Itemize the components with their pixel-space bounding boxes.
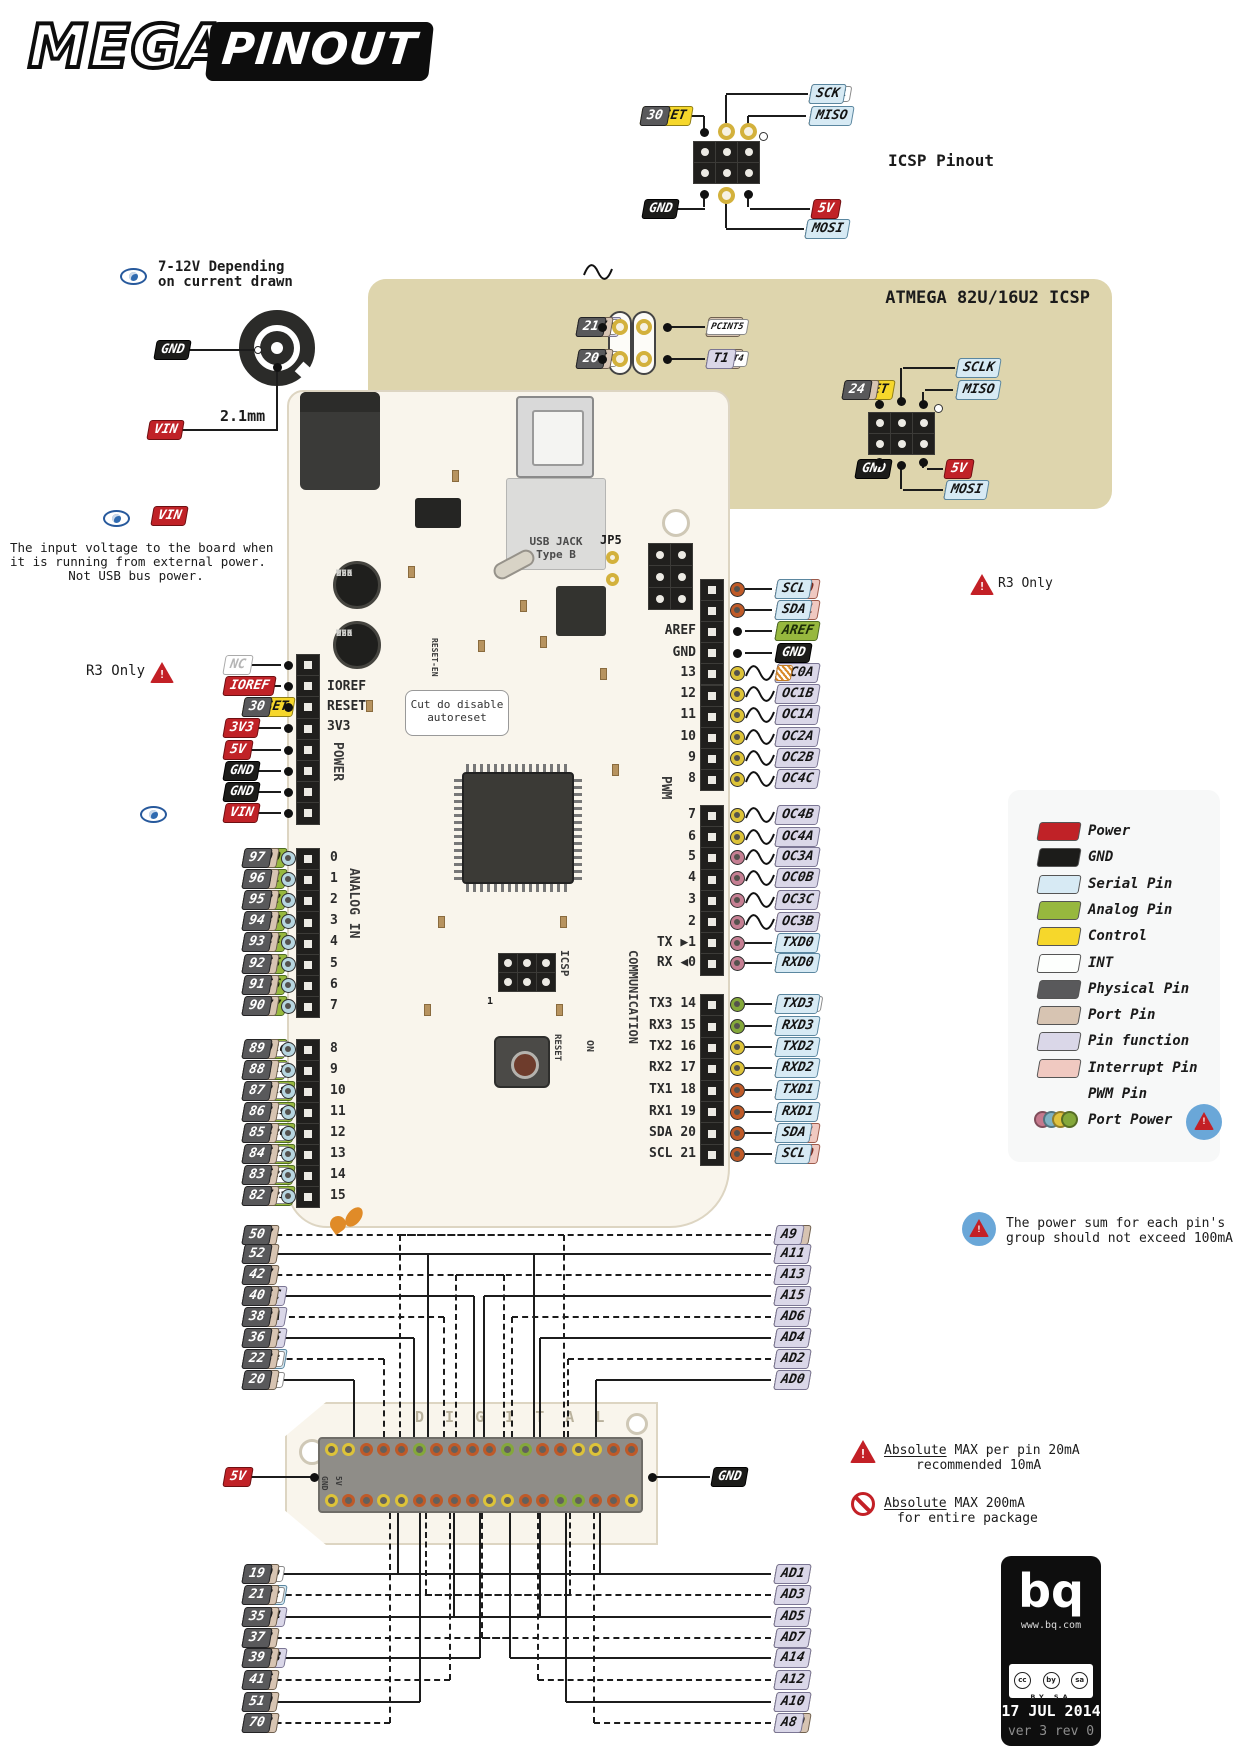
pin-dot [730, 808, 745, 823]
pin-dot [284, 661, 293, 670]
digital-pin-dot [554, 1443, 567, 1456]
pin-tag-se: RXD3 [774, 1016, 821, 1036]
connector-line [595, 1380, 597, 1437]
atmega2560-chip [462, 772, 574, 884]
pin-tag-se: TXD0 [774, 933, 821, 953]
pin-dot [281, 1189, 296, 1204]
pin-dot [284, 788, 293, 797]
pin-dot [730, 708, 745, 723]
pin-tag-gd: GND [854, 459, 893, 479]
connector-line [538, 1679, 771, 1681]
digital-pin-dot [342, 1494, 355, 1507]
pin-dot [730, 997, 745, 1012]
annotation-text: on current drawn [158, 274, 293, 290]
pin-tag-ph: 88 [241, 1060, 272, 1080]
pin-dot [919, 458, 928, 467]
smd-component [452, 470, 459, 482]
board-printed-label: TX1 18 [624, 1082, 696, 1097]
pin-dot [730, 751, 745, 766]
pin-dot [663, 323, 672, 332]
connector-line [668, 326, 705, 328]
connector-line [745, 1153, 772, 1155]
digital-pin-dot [625, 1443, 638, 1456]
pin-dot [281, 935, 296, 950]
pin-tag-ph: 85 [241, 1123, 272, 1143]
pin-tag-pw: IOREF [222, 676, 277, 696]
digital-pin-dot [395, 1494, 408, 1507]
header-pin [296, 802, 320, 824]
icsp-pin [670, 565, 693, 588]
legend-label: Power [1088, 823, 1130, 839]
board-printed-label: RESET [327, 699, 366, 714]
header-pin [296, 890, 320, 912]
pin-tag-pw: VIN [150, 506, 189, 526]
pin-tag-se: SCL [774, 1144, 813, 1164]
digital-pin-dot [519, 1494, 532, 1507]
digital-pin-dot [572, 1443, 585, 1456]
header-pin [700, 1058, 724, 1080]
pin-tag-fu: A14 [773, 1648, 812, 1668]
board-vertical-label: PWM [658, 776, 673, 799]
annotation-text: JP5 [600, 533, 622, 547]
pin-tag-fu: A13 [773, 1265, 812, 1285]
annotation-text: R3 Only [998, 576, 1053, 591]
legend [1008, 790, 1220, 1162]
board-printed-label: 10 [624, 729, 696, 744]
pwm-squiggle-icon [745, 913, 775, 931]
icsp-pin [648, 543, 671, 566]
header-pin [296, 1081, 320, 1103]
board-printed-number: 11 [330, 1104, 346, 1119]
pin-tag-fu: AD6 [773, 1307, 812, 1327]
board-printed-number: 14 [330, 1167, 346, 1182]
gold-ring-pad [606, 573, 619, 586]
board-printed-number: 3 [330, 913, 338, 928]
logo-pinout-text: PINOUT [220, 24, 420, 75]
header-pin [700, 600, 724, 622]
pin-tag-ph: 95 [241, 890, 272, 910]
pin-tag-pw: 5V [222, 1467, 253, 1487]
header-pin [296, 1039, 320, 1061]
digital-pin-dot [377, 1443, 390, 1456]
digital-pin-dot [377, 1494, 390, 1507]
header-pin [296, 911, 320, 933]
header-pin [296, 675, 320, 697]
digital-pin-dot [448, 1443, 461, 1456]
icsp-pin [517, 953, 537, 973]
connector-line [650, 1476, 710, 1478]
header-pin [700, 1101, 724, 1123]
header-pin [700, 769, 724, 791]
board-printed-number: 6 [330, 977, 338, 992]
connector-line [927, 468, 943, 470]
pin-dot [730, 1019, 745, 1034]
pin-tag-gd: GND [710, 1467, 749, 1487]
cc-sa-icon: sa [1071, 1672, 1088, 1689]
pin-dot [281, 914, 296, 929]
legend-swatch [1036, 875, 1081, 894]
board-printed-label: 13 [624, 665, 696, 680]
eye-icon [103, 510, 130, 527]
smd-component [560, 916, 567, 928]
connector-line [745, 1132, 772, 1134]
pin-tag-se: SCK [808, 84, 847, 104]
pin-dot [730, 871, 745, 886]
pin-dot [281, 851, 296, 866]
connector-line [726, 228, 804, 230]
abs-max-pin-warning2: recommended 10mA [916, 1458, 1041, 1473]
pin-tag-ph: 40 [241, 1286, 272, 1306]
pin-tag-pw: VIN [146, 420, 185, 440]
pwm-squiggle-icon [745, 685, 775, 703]
icsp-pin [868, 412, 891, 434]
board-printed-label: RX1 19 [624, 1104, 696, 1119]
header-pin [700, 727, 724, 749]
board-printed-number: 4 [330, 934, 338, 949]
abs-max-pin-warning: Absolute MAX per pin 20mA [884, 1443, 1080, 1458]
icsp-pin [498, 953, 518, 973]
pin-tag-pc: PCINT5 [706, 319, 749, 335]
connector-line [428, 1253, 771, 1255]
logo-pinout: PINOUT [205, 22, 434, 81]
pin-tag-fu: AD0 [773, 1370, 812, 1390]
warning-icon: ! [970, 574, 994, 595]
connector-line [903, 489, 943, 491]
pin-tag-gd: GND [774, 643, 813, 663]
pin-dot [281, 893, 296, 908]
connector-line [397, 1513, 399, 1574]
icsp-pin [536, 953, 556, 973]
gold-ring-pad [636, 351, 652, 367]
header-pin [296, 1144, 320, 1166]
connector-line [539, 1513, 541, 1617]
connector-line [399, 1235, 401, 1437]
pin-dot [730, 687, 745, 702]
pin-tag-se: MISO [808, 106, 855, 126]
board-printed-number: 1 [330, 871, 338, 886]
board-vertical-label: COMMUNICATION [626, 950, 640, 1044]
legend-swatch [1036, 822, 1081, 841]
header-pin [700, 826, 724, 848]
abs-max-pkg-warning2: for entire package [897, 1511, 1038, 1526]
pin-dot [254, 346, 262, 354]
pwm-squiggle-icon [745, 891, 775, 909]
header-pin [700, 1122, 724, 1144]
pin-dot [730, 666, 745, 681]
pin-dot [284, 746, 293, 755]
annotation-text: 2.1mm [220, 407, 265, 425]
pwm-squiggle-icon [745, 728, 775, 746]
usb-jack-text: USB JACK [507, 535, 605, 548]
board-printed-label: 2 [624, 914, 696, 929]
annotation-text: R3 Only [86, 663, 145, 679]
pwm-squiggle-icon [745, 806, 775, 824]
pin-tag-fu: A12 [773, 1670, 812, 1690]
gold-ring-pad [606, 551, 619, 564]
board-vertical-label: 5V [334, 1476, 343, 1486]
pin-dot [730, 730, 745, 745]
connector-line [419, 1513, 421, 1702]
board-printed-label: TX ▶1 [624, 935, 696, 950]
pin-dot [919, 400, 928, 409]
header-pin [296, 869, 320, 891]
connector-line [568, 1358, 771, 1360]
connector-line [427, 1254, 429, 1437]
connector-line [456, 1274, 771, 1276]
digital-pin-dot [501, 1494, 514, 1507]
pin-tag-fu: OC1A [774, 705, 821, 725]
board-printed-label: SDA 20 [624, 1125, 696, 1140]
pin-tag-fu: AD4 [773, 1328, 812, 1348]
board-printed-number: 12 [330, 1125, 346, 1140]
icsp-pin [737, 141, 760, 163]
pin-dot [730, 1083, 745, 1098]
pwm-squiggle-icon [745, 848, 775, 866]
digital-pin-dot [501, 1443, 514, 1456]
smd-component [478, 640, 485, 652]
pin-tag-fu: OC4B [774, 805, 821, 825]
cc-by-icon: by [1043, 1672, 1060, 1689]
pin-tag-fu: A10 [773, 1692, 812, 1712]
connector-line [745, 588, 772, 590]
header-pin [296, 760, 320, 782]
connector-line [453, 1513, 455, 1617]
annotation-text: The input voltage to the board when [10, 540, 262, 555]
pin-dot [730, 1061, 745, 1076]
pin-dot [273, 363, 282, 372]
abs-max-pkg-warning: Absolute MAX 200mA [884, 1496, 1025, 1511]
gold-ring-pad [718, 123, 735, 140]
pin-tag-ph: 86 [241, 1102, 272, 1122]
digital-pin-dot [360, 1443, 373, 1456]
pin-tag-pw: 5V [943, 459, 974, 479]
pin-tag-fu: A8 [773, 1713, 804, 1733]
bq-url: www.bq.com [1001, 1620, 1101, 1631]
pin-tag-fu: A11 [773, 1244, 812, 1264]
pin-tag-ph: 50 [241, 1225, 272, 1245]
header-pin [700, 748, 724, 770]
pin-dot [730, 582, 745, 597]
connector-line [426, 1594, 771, 1596]
mounting-hole [662, 509, 690, 537]
board-vertical-label: ICSP [558, 950, 571, 977]
pin-dot [281, 1084, 296, 1099]
board-printed-label: 12 [624, 686, 696, 701]
pin-dot [284, 767, 293, 776]
mcu-pins [454, 776, 462, 880]
pin-tag-fu: OC1B [774, 684, 821, 704]
warning-icon: ! [150, 662, 174, 683]
pin-tag-ph: 91 [241, 975, 272, 995]
connector-line [593, 1513, 595, 1723]
pin-tag-se: TXD1 [774, 1080, 821, 1100]
pin-dot [730, 1147, 745, 1162]
usb-controller-chip [556, 586, 606, 636]
board-printed-label: 4 [624, 870, 696, 885]
pin-tag-pw: 5V [222, 740, 253, 760]
board-printed-number: 7 [330, 998, 338, 1013]
connector-line [511, 1317, 513, 1437]
connector-line [533, 1254, 535, 1437]
pin-tag-ha [775, 665, 794, 681]
annotation-text: Not USB bus power. [10, 568, 262, 583]
digital-pin-dot [607, 1443, 620, 1456]
pin-tag-fu: OC4C [774, 769, 821, 789]
board-printed-label: AREF [624, 623, 696, 638]
pwm-squiggle-icon [745, 869, 775, 887]
pin-dot [730, 603, 745, 618]
pin-tag-ph: 51 [241, 1692, 272, 1712]
pin-tag-fu: AD5 [773, 1607, 812, 1627]
reset-button[interactable] [494, 1036, 550, 1088]
pin-tag-fu: AD3 [773, 1585, 812, 1605]
pin-tag-fu: OC2B [774, 748, 821, 768]
header-pin [296, 718, 320, 740]
version: ver 3 rev 0 [1001, 1724, 1101, 1739]
board-printed-label: SCL 21 [624, 1146, 696, 1161]
digital-pin-dot [572, 1494, 585, 1507]
pin-dot [759, 132, 768, 141]
pin-tag-fu: OC3A [774, 847, 821, 867]
pin-dot [730, 915, 745, 930]
legend-swatch [1036, 1032, 1081, 1051]
pin-dot [700, 190, 709, 199]
icsp-pin [498, 972, 518, 992]
header-pin [296, 954, 320, 976]
icsp-pin [670, 543, 693, 566]
pin-tag-ph: 42 [241, 1265, 272, 1285]
board-printed-number: 9 [330, 1062, 338, 1077]
annotation-text: it is running from external power. [10, 554, 262, 569]
board-printed-label: 3 [624, 892, 696, 907]
no-entry-icon [851, 1492, 875, 1516]
pin-dot [281, 872, 296, 887]
pin-tag-fu: OC0B [774, 868, 821, 888]
header-pin [700, 1080, 724, 1102]
pin-tag-se: SDA [774, 1123, 813, 1143]
warning-circle-icon: ! [1186, 1104, 1222, 1140]
pin-dot [875, 458, 884, 467]
smd-component [612, 764, 619, 776]
pin-dot [934, 404, 943, 413]
header-pin [700, 805, 724, 827]
pin-tag-ph: 97 [241, 848, 272, 868]
connector-line [503, 1275, 505, 1437]
connector-line [745, 1025, 772, 1027]
icsp-pin [693, 162, 716, 184]
legend-swatch [1036, 848, 1081, 867]
pin-tag-ph: 52 [241, 1244, 272, 1264]
smd-component [424, 1004, 431, 1016]
board-vertical-label: ANALOG IN [346, 868, 361, 938]
pin-tag-se: MOSI [943, 480, 990, 500]
connector-line [539, 1338, 541, 1437]
icsp-pin [536, 972, 556, 992]
pwm-squiggle-icon [745, 706, 775, 724]
pin-dot [284, 682, 293, 691]
mcu-pins [466, 884, 570, 892]
pin-tag-se: SDA [774, 600, 813, 620]
legend-label: Analog Pin [1088, 902, 1172, 918]
legend-label: Pin function [1088, 1033, 1189, 1049]
pin-tag-se: RXD0 [774, 953, 821, 973]
legend-swatch [1036, 954, 1081, 973]
pin-tag-gd: GND [222, 761, 261, 781]
digital-pin-dot [325, 1443, 338, 1456]
header-pin [700, 1144, 724, 1166]
digital-pin-dot [607, 1494, 620, 1507]
pin-tag-pw: 5V [810, 199, 841, 219]
legend-label: Port Pin [1088, 1007, 1155, 1023]
connector-line [540, 1337, 771, 1339]
pin-tag-gd: GND [641, 199, 680, 219]
connector-line [279, 1316, 444, 1318]
digital-pin-dot [536, 1443, 549, 1456]
pin-dot [897, 461, 906, 470]
power-sum-warning: group should not exceed 100mA [1006, 1231, 1233, 1246]
header-pin [700, 685, 724, 707]
eye-icon [120, 268, 147, 285]
board-printed-label: 7 [624, 807, 696, 822]
pin-dot [730, 1105, 745, 1120]
header-pin [700, 621, 724, 643]
connector-line [925, 389, 953, 391]
power-jack-body [300, 392, 380, 490]
legend-label: PWM Pin [1088, 1086, 1147, 1102]
pin-dot [730, 1040, 745, 1055]
connector-line [276, 368, 278, 430]
pin-tag-ph: 96 [241, 869, 272, 889]
legend-label: Physical Pin [1088, 981, 1189, 997]
pin-dot [310, 1473, 319, 1482]
connector-line [537, 1513, 539, 1680]
connector-line [449, 1513, 451, 1680]
annotation-text: 1 [487, 996, 493, 1007]
board-printed-label: GND [624, 645, 696, 660]
gold-ring-pad [636, 319, 652, 335]
pwm-squiggle-icon [745, 770, 775, 788]
connector-line [745, 652, 772, 654]
pin-tag-ph: 30 [639, 106, 670, 126]
connector-line [389, 1513, 391, 1723]
icsp-pin [912, 433, 935, 455]
pin-tag-pw: VIN [222, 803, 261, 823]
digital-pin-dot [413, 1494, 426, 1507]
board-printed-label: 5 [624, 849, 696, 864]
eye-icon [140, 806, 167, 823]
pin-tag-ph: 94 [241, 911, 272, 931]
header-pin [700, 911, 724, 933]
connector-line [745, 962, 772, 964]
pin-tag-se: MISO [955, 380, 1002, 400]
connector-line [703, 197, 705, 207]
pin-dot [281, 999, 296, 1014]
pin-dot [648, 1473, 657, 1482]
pin-dot [281, 1168, 296, 1183]
pin-tag-ph: 89 [241, 1039, 272, 1059]
connector-line [484, 1295, 771, 1297]
pin-tag-se: SCLK [955, 358, 1002, 378]
legend-swatch [1036, 927, 1081, 946]
header-pin [700, 932, 724, 954]
legend-label: Interrupt Pin [1088, 1060, 1198, 1076]
usb-connector-icon [516, 396, 594, 478]
pin-dot [733, 649, 742, 658]
barrel-jack-gap [295, 362, 322, 388]
connector-line [745, 1111, 772, 1113]
connector-line [563, 1235, 565, 1437]
pin-tag-fu: AD7 [773, 1628, 812, 1648]
